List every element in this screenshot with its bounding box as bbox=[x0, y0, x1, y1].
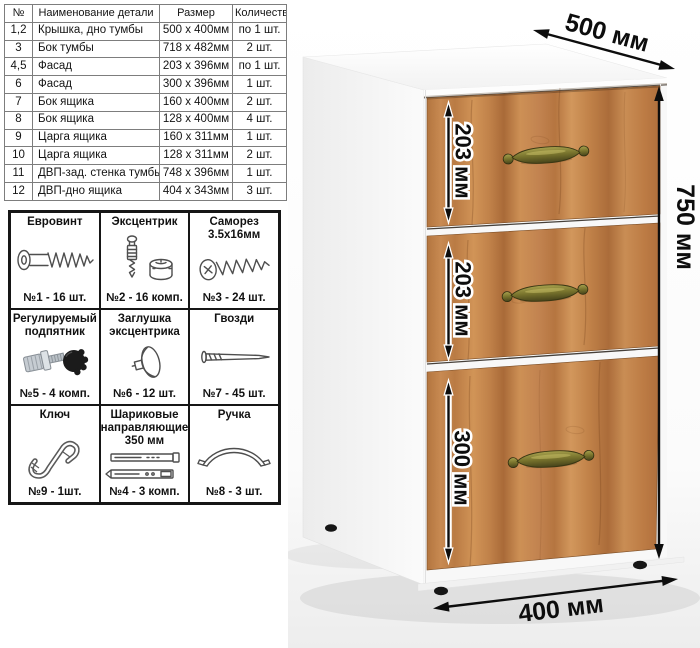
table-row: 11ДВП-зад. стенка тумбы748 х 396мм1 шт. bbox=[5, 165, 287, 183]
cam-lock-icon bbox=[103, 229, 187, 292]
dim-label-drawer-middle: 203 мм bbox=[451, 261, 476, 336]
hardware-title: Ключ bbox=[40, 409, 70, 422]
dim-label-height: 750 мм bbox=[671, 184, 699, 270]
hardware-count: №6 - 12 шт. bbox=[113, 388, 176, 400]
parts-table-header-row: № Наименование детали Размер Количество bbox=[5, 5, 287, 23]
dim-label-drawer-bottom: 300 мм bbox=[450, 430, 475, 505]
hardware-count: №1 - 16 шт. bbox=[23, 292, 86, 304]
hardware-title: Саморез 3.5х16мм bbox=[192, 216, 276, 242]
table-row: 9Царга ящика160 х 311мм1 шт. bbox=[5, 129, 287, 147]
nails-icon bbox=[192, 326, 276, 389]
key-icon bbox=[13, 422, 97, 486]
hardware-title: Шариковые направляющие 350 мм bbox=[101, 409, 189, 448]
col-part-name: Наименование детали bbox=[33, 5, 160, 23]
parts-table: № Наименование детали Размер Количество … bbox=[4, 4, 287, 201]
euro-screw-icon bbox=[13, 229, 97, 292]
hardware-title: Ручка bbox=[218, 409, 251, 422]
hardware-count: №8 - 3 шт. bbox=[206, 486, 262, 498]
hardware-count: №7 - 45 шт. bbox=[203, 388, 266, 400]
self-tapping-screw-icon bbox=[192, 242, 276, 292]
assembly-sheet: № Наименование детали Размер Количество … bbox=[0, 0, 700, 648]
hardware-title: Гвозди bbox=[214, 313, 254, 326]
col-number: № bbox=[5, 5, 33, 23]
foot-front-left bbox=[434, 587, 448, 595]
hardware-count: №5 - 4 комп. bbox=[20, 388, 90, 400]
hardware-item-klyuch: Ключ №9 - 1шт. bbox=[10, 405, 100, 503]
table-row: 7Бок ящика160 х 400мм2 шт. bbox=[5, 93, 287, 111]
table-row: 3Бок тумбы718 х 482мм2 шт. bbox=[5, 40, 287, 58]
hardware-item-podpyatnik: Регулируемый подпятник bbox=[10, 309, 100, 406]
hardware-count: №9 - 1шт. bbox=[28, 486, 81, 498]
hardware-count: №3 - 24 шт. bbox=[203, 292, 266, 304]
table-row: 6Фасад300 х 396мм1 шт. bbox=[5, 76, 287, 94]
table-row: 8Бок ящика128 х 400мм4 шт. bbox=[5, 111, 287, 129]
hardware-item-gvozdi: Гвозди №7 - 45 шт. bbox=[189, 309, 279, 406]
hardware-item-ruchka: Ручка №8 - 3 шт. bbox=[189, 405, 279, 503]
drawer-slides-icon bbox=[103, 448, 187, 486]
hardware-grid: Евровинт №1 - 16 шт. Эксцентрик bbox=[8, 210, 281, 505]
cabinet-illustration: 500 мм 750 мм 400 мм 203 мм bbox=[288, 0, 700, 648]
table-row: 10Царга ящика128 х 311мм2 шт. bbox=[5, 147, 287, 165]
hardware-item-zaglushka: Заглушка эксцентрика №6 - 12 шт. bbox=[100, 309, 190, 406]
hardware-item-napravlyayushchie: Шариковые направляющие 350 мм №4 - 3 ком… bbox=[100, 405, 190, 503]
hardware-count: №4 - 3 комп. bbox=[109, 486, 179, 498]
cabinet-side-panel bbox=[303, 57, 424, 585]
col-quantity: Количество bbox=[233, 5, 287, 23]
foot-back-left bbox=[325, 524, 337, 532]
handle-icon bbox=[192, 422, 276, 486]
table-row: 4,5Фасад203 х 396ммпо 1 шт. bbox=[5, 58, 287, 76]
hardware-title: Эксцентрик bbox=[111, 216, 177, 229]
foot-front-right bbox=[633, 561, 647, 569]
hardware-title: Заглушка эксцентрика bbox=[103, 313, 187, 339]
cam-cover-icon bbox=[103, 338, 187, 388]
hardware-count: №2 - 16 комп. bbox=[106, 292, 183, 304]
table-row: 1,2Крышка, дно тумбы500 х 400ммпо 1 шт. bbox=[5, 22, 287, 40]
col-size: Размер bbox=[160, 5, 233, 23]
hardware-title: Евровинт bbox=[27, 216, 83, 229]
table-row: 12ДВП-дно ящика404 х 343мм3 шт. bbox=[5, 182, 287, 200]
hardware-item-eurovint: Евровинт №1 - 16 шт. bbox=[10, 212, 100, 309]
hardware-item-samorez: Саморез 3.5х16мм №3 - 24 шт. bbox=[189, 212, 279, 309]
hardware-item-excentric: Эксцентрик №2 - 16 комп. bbox=[100, 212, 190, 309]
dim-label-drawer-top: 203 мм bbox=[451, 123, 476, 198]
hardware-title: Регулируемый подпятник bbox=[13, 313, 97, 339]
adjustable-foot-icon bbox=[13, 338, 97, 388]
